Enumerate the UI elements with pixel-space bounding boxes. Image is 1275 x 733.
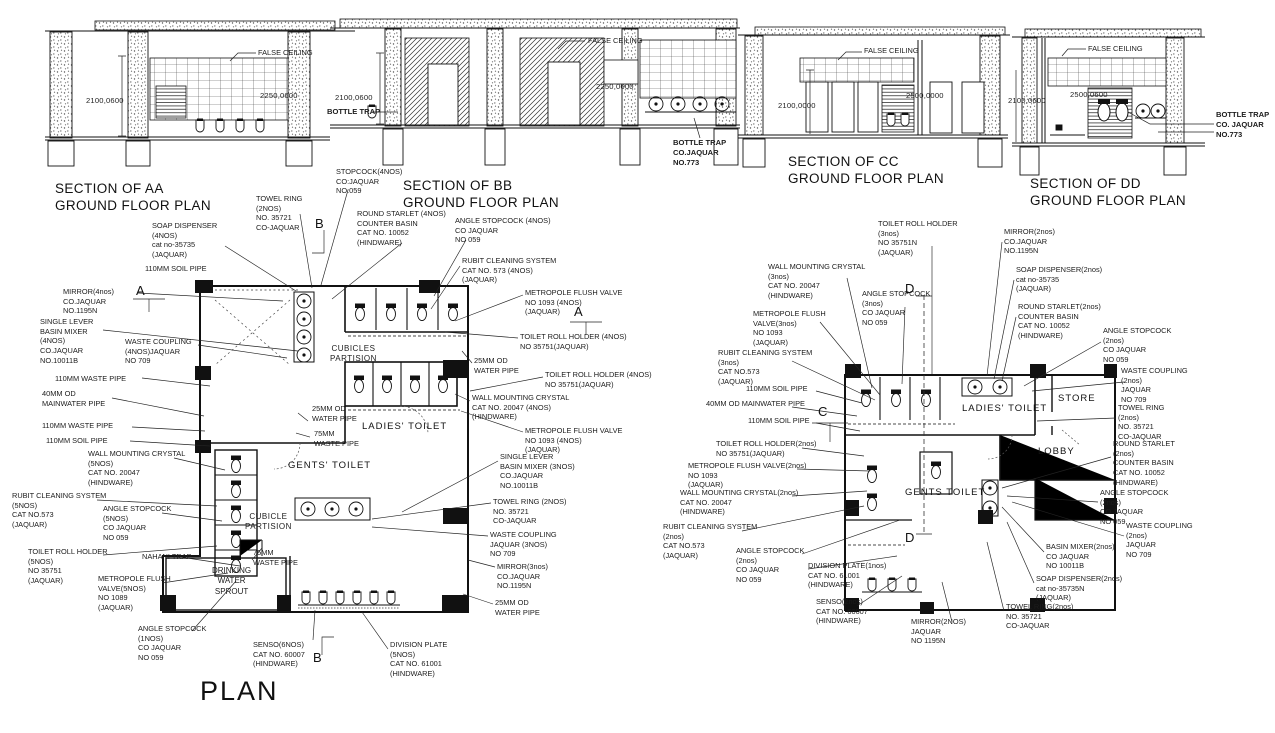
label-metropole-4nos-b: METROPOLE FLUSH VALVE NO 1093 (4NOS) (JA… bbox=[525, 426, 622, 455]
label-angle-stopcock-5nos: ANGLE STOPCOCK (5NOS) CO JAQUAR NO 059 bbox=[103, 504, 171, 543]
label-stopcock-4nos: STOPCOCK(4NOS) CO:JAQUAR NO:059 bbox=[336, 167, 402, 196]
dim-dd-height: 2100,0600 bbox=[1008, 96, 1046, 105]
label-round-starlet-4nos: ROUND STARLET (4NOS) COUNTER BASIN CAT N… bbox=[357, 209, 446, 248]
label-metropole-5nos: METROPOLE FLUSH VALVE(5NOS) NO 1089 (JAQ… bbox=[98, 574, 171, 613]
label-round-starlet-2nos-r: ROUND STARLET (2nos) COUNTER BASIN CAT N… bbox=[1113, 439, 1175, 487]
label-rubit-4nos: RUBIT CLEANING SYSTEM CAT NO. 573 (4NOS)… bbox=[462, 256, 556, 285]
label-rubit-5nos: RUBIT CLEANING SYSTEM (5NOS) CAT NO.573 … bbox=[12, 491, 106, 530]
section-marker-c: C bbox=[818, 404, 827, 419]
label-angle-stopcock-3nos: ANGLE STOPCOCK (3nos) CO JAQUAR NO 059 bbox=[862, 289, 930, 328]
bottle-trap-note-bb: BOTTLE TRAP CO.JAQUAR NO.773 bbox=[673, 138, 726, 168]
section-cc-title: SECTION OF CC GROUND FLOOR PLAN bbox=[788, 154, 944, 188]
label-waste-coupling-3nos: WASTE COUPLING JAQUAR (3NOS) NO 709 bbox=[490, 530, 557, 559]
label-round-starlet-2nos-top: ROUND STARLET(2nos) COUNTER BASIN CAT NO… bbox=[1018, 302, 1101, 341]
label-senso-2nos: SENSO(2nos) CAT NO. 60007 (HINDWARE) bbox=[816, 597, 868, 626]
label-wall-crystal-5nos: WALL MOUNTING CRYSTAL (5NOS) CAT NO. 200… bbox=[88, 449, 185, 488]
label-angle-stopcock-1nos: ANGLE STOPCOCK (1NOS) CO JAQUAR NO 059 bbox=[138, 624, 206, 663]
label-nahani-trap: NAHANI TRAP bbox=[142, 552, 192, 562]
label-angle-stopcock-2nos-c: ANGLE STOPCOCK (2nos) CO JAQUAR NO 059 bbox=[736, 546, 804, 585]
label-metropole-2nos: METROPOLE FLUSH VALVE(2nos) NO 1093 (JAQ… bbox=[688, 461, 806, 490]
label-division-plate-1nos: DIVISION PLATE(1nos) CAT NO. 61001 (HIND… bbox=[808, 561, 886, 590]
label-mirror-2nos-bot: MIRROR(2NOS) JAQUAR NO 1195N bbox=[911, 617, 966, 646]
section-marker-b-bottom: B bbox=[313, 650, 322, 665]
label-75mm-waste-mid: 75MM WASTE PIPE bbox=[314, 429, 359, 448]
room-gents-toilet-left: GENTS' TOILET bbox=[288, 460, 371, 471]
label-110mm-soil-r2: 110MM SOIL PIPE bbox=[748, 416, 810, 426]
label-110mm-soil-r1: 110MM SOIL PIPE bbox=[746, 384, 808, 394]
section-marker-a-right: A bbox=[574, 304, 583, 319]
label-towel-ring-right: TOWEL RING (2NOS) NO. 35721 CO-JAQUAR bbox=[493, 497, 567, 526]
section-dd-title: SECTION OF DD GROUND FLOOR PLAN bbox=[1030, 176, 1186, 210]
label-angle-stopcock-4nos: ANGLE STOPCOCK (4NOS) CO JAQUAR NO 059 bbox=[455, 216, 551, 245]
dim-cc-height: 2100,0000 bbox=[778, 101, 816, 110]
label-toilet-roll-5nos: TOILET ROLL HOLDER (5NOS) NO 35751 (JAQU… bbox=[28, 547, 108, 586]
label-110mm-waste-pipe-b: 110MM WASTE PIPE bbox=[42, 421, 113, 431]
label-mirror-3nos: MIRROR(3nos) CO.JAQUAR NO.1195N bbox=[497, 562, 548, 591]
label-soap-dispenser-2nos-bot: SOAP DISPENSER(2nos) cat no-35735N (JAQU… bbox=[1036, 574, 1122, 603]
label-waste-coupling-4nos: WASTE COUPLING (4NOS)JAQUAR NO 709 bbox=[125, 337, 192, 366]
room-cubicles-partision: CUBICLES PARTISION bbox=[330, 344, 377, 365]
dim-cc-ceiling: 2500,0000 bbox=[906, 91, 944, 100]
label-waste-coupling-2nos-a: WASTE COUPLING (2nos) JAQUAR NO 709 bbox=[1121, 366, 1188, 405]
bottle-trap-note-dd: BOTTLE TRAP CO. JAQUAR NO.773 bbox=[1216, 110, 1269, 140]
label-soap-dispenser-2nos-top: SOAP DISPENSER(2nos) cat no-35735 (JAQUA… bbox=[1016, 265, 1102, 294]
false-ceiling-label-aa: FALSE CEILING bbox=[258, 48, 313, 58]
label-single-lever-3nos: SINGLE LEVER BASIN MIXER (3NOS) CO.JAQUA… bbox=[500, 452, 575, 491]
section-marker-d-top: D bbox=[905, 281, 914, 296]
bottle-trap-label-bb: BOTTLE TRAP bbox=[327, 107, 380, 117]
section-marker-d-bottom: D bbox=[905, 530, 914, 545]
label-metropole-3nos: METROPOLE FLUSH VALVE(3nos) NO 1093 (JAQ… bbox=[753, 309, 826, 348]
section-marker-b-top: B bbox=[315, 216, 324, 231]
label-110mm-soil-pipe-b: 110MM SOIL PIPE bbox=[46, 436, 108, 446]
label-toilet-roll-2nos: TOILET ROLL HOLDER(2nos) NO 35751(JAQUAR… bbox=[716, 439, 817, 458]
dim-aa-ceiling: 2250,0600 bbox=[260, 91, 298, 100]
dim-bb-ceiling: 2250,0600 bbox=[596, 82, 634, 91]
label-toilet-roll-3nos: TOILET ROLL HOLDER (3nos) NO 35751N (JAQ… bbox=[878, 219, 958, 258]
section-marker-a-left: A bbox=[136, 283, 145, 298]
label-toilet-roll-4nos-b: TOILET ROLL HOLDER (4NOS) NO 35751(JAQUA… bbox=[545, 370, 652, 389]
room-gents-toilet-right: GENTS TOILET bbox=[905, 487, 985, 498]
false-ceiling-label-dd: FALSE CEILING bbox=[1088, 44, 1143, 54]
label-mirror-2nos-top: MIRROR(2nos) CO.JAQUAR NO.1195N bbox=[1004, 227, 1055, 256]
plan-title: PLAN bbox=[200, 676, 279, 707]
label-soap-dispenser-4nos: SOAP DISPENSER (4NOS) cat no-35735 (JAQU… bbox=[152, 221, 217, 260]
label-senso-6nos: SENSO(6NOS) CAT NO. 60007 (HINDWARE) bbox=[253, 640, 305, 669]
room-cubicle-partision: CUBICLE PARTISION bbox=[245, 512, 292, 533]
dim-aa-height: 2100,0600 bbox=[86, 96, 124, 105]
label-toilet-roll-4nos-a: TOILET ROLL HOLDER (4NOS) NO 35751(JAQUA… bbox=[520, 332, 627, 351]
label-40mm-mainwater: 40MM OD MAINWATER PIPE bbox=[42, 389, 105, 408]
false-ceiling-label-cc: FALSE CEILING bbox=[864, 46, 919, 56]
label-towel-ring-top: TOWEL RING (2NOS) NO. 35721 CO-JAQUAR bbox=[256, 194, 302, 233]
label-towel-ring-2nos-r: TOWEL RING (2nos) NO. 35721 CO-JAQUAR bbox=[1118, 403, 1164, 442]
dim-dd-ceiling: 2500,0600 bbox=[1070, 90, 1108, 99]
label-wall-crystal-2nos: WALL MOUNTING CRYSTAL(2nos) CAT NO. 2004… bbox=[680, 488, 798, 517]
label-towel-ring-2nos-bot: TOWEL RING(2nos) NO. 35721 CO-JAQUAR bbox=[1006, 602, 1073, 631]
label-angle-stopcock-2nos-a: ANGLE STOPCOCK (2nos) CO JAQUAR NO 059 bbox=[1103, 326, 1171, 365]
label-110mm-soil-pipe-top: 110MM SOIL PIPE bbox=[145, 264, 207, 274]
false-ceiling-label-bb: FALSE CEILING bbox=[588, 36, 643, 46]
label-division-plate-5nos: DIVISION PLATE (5NOS) CAT NO. 61001 (HIN… bbox=[390, 640, 447, 679]
label-waste-coupling-2nos-b: WASTE COUPLING (2nos) JAQUAR NO 709 bbox=[1126, 521, 1193, 560]
room-ladies-toilet-right: LADIES' TOILET bbox=[962, 403, 1047, 414]
label-wall-crystal-4nos: WALL MOUNTING CRYSTAL CAT NO. 20047 (4NO… bbox=[472, 393, 569, 422]
section-aa-title: SECTION OF AA GROUND FLOOR PLAN bbox=[55, 181, 211, 215]
room-lobby: LOBBY bbox=[1038, 446, 1075, 457]
label-25mm-water-r1: 25MM OD WATER PIPE bbox=[474, 356, 519, 375]
section-aa-drawing bbox=[45, 21, 355, 166]
room-ladies-toilet-left: LADIES' TOILET bbox=[362, 421, 447, 432]
label-single-lever-4nos: SINGLE LEVER BASIN MIXER (4NOS) CO.JAQUA… bbox=[40, 317, 93, 365]
label-mirror-4nos: MIRROR(4nos) CO.JAQUAR NO.1195N bbox=[63, 287, 114, 316]
label-wall-crystal-3nos: WALL MOUNTING CRYSTAL (3nos) CAT NO. 200… bbox=[768, 262, 865, 301]
room-store: STORE bbox=[1058, 393, 1096, 404]
label-25mm-water-mid: 25MM OD WATER PIPE bbox=[312, 404, 357, 423]
cad-sheet: SECTION OF AA GROUND FLOOR PLAN SECTION … bbox=[0, 0, 1275, 733]
room-drinking-water-sprout: DRINKING WATER SPROUT bbox=[212, 566, 251, 597]
label-basin-mixer-2nos: BASIN MIXER(2nos) CO JAQUAR NO 10011B bbox=[1046, 542, 1115, 571]
section-bb-title: SECTION OF BB GROUND FLOOR PLAN bbox=[403, 178, 559, 212]
label-110mm-waste-pipe-a: 110MM WASTE PIPE bbox=[55, 374, 126, 384]
label-25mm-water-r2: 25MM OD WATER PIPE bbox=[495, 598, 540, 617]
label-75mm-waste-low: 75MM WASTE PIPE bbox=[253, 548, 298, 567]
dim-bb-height: 2100,0600 bbox=[335, 93, 373, 102]
label-40mm-mainwater-r: 40MM OD MAINWATER PIPE bbox=[706, 399, 805, 409]
label-rubit-3nos: RUBIT CLEANING SYSTEM (3nos) CAT NO.573 … bbox=[718, 348, 812, 387]
